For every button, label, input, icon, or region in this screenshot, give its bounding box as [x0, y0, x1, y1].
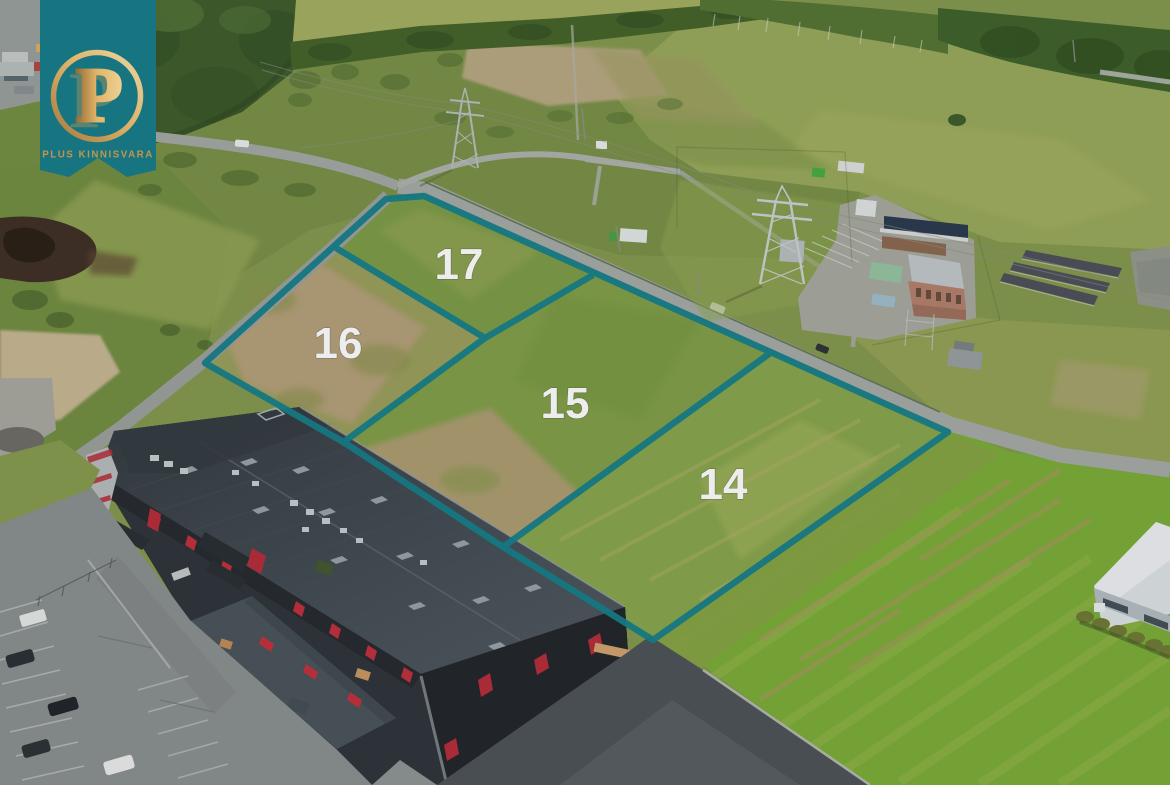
svg-text:14: 14	[699, 460, 748, 509]
svg-text:P: P	[75, 51, 123, 138]
svg-text:15: 15	[541, 379, 590, 428]
svg-text:17: 17	[435, 240, 484, 289]
svg-text:16: 16	[314, 319, 363, 368]
svg-text:PLUS KINNISVARA: PLUS KINNISVARA	[42, 150, 154, 161]
